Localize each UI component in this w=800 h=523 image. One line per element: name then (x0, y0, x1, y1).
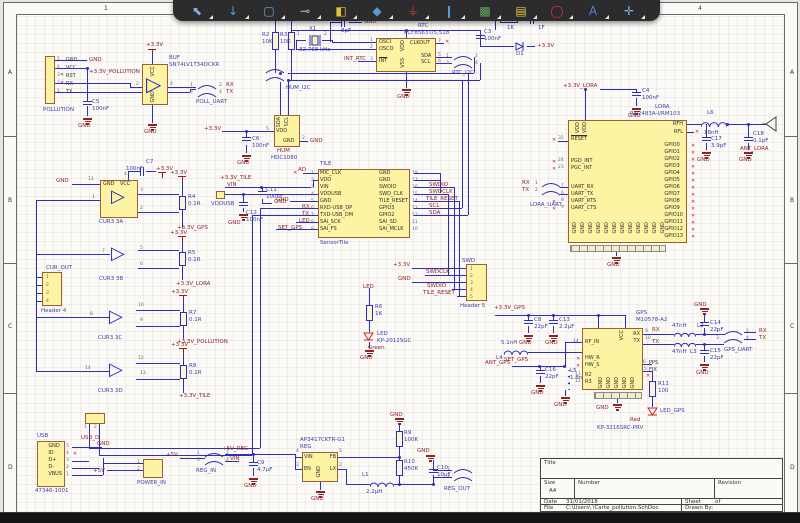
text-label[interactable]: 100nF (484, 36, 501, 42)
inductor[interactable] (674, 330, 696, 339)
opamp-symbol[interactable]: ▷ (111, 245, 125, 263)
text-label[interactable]: C3 (484, 29, 491, 35)
wire[interactable] (585, 89, 586, 120)
wire[interactable] (183, 326, 184, 339)
text-label[interactable]: GND (397, 94, 410, 100)
wire[interactable] (346, 469, 347, 484)
text-label[interactable]: +3.3V (537, 43, 554, 49)
text-label[interactable]: 1 (370, 38, 373, 44)
text-label[interactable]: 1K (507, 25, 514, 31)
wire[interactable] (643, 371, 652, 372)
wire[interactable] (136, 379, 180, 380)
text-label[interactable]: RX (522, 180, 530, 186)
text-label[interactable]: UART_RX (571, 184, 594, 190)
text-label[interactable]: UART_CTS (571, 205, 596, 211)
text-label[interactable]: LED_GPS (660, 408, 685, 414)
gnd-pin-row[interactable]: GNDGNDGNDGNDGNDGNDGNDGNDGNDGNDGNDGND (572, 222, 668, 238)
text-label[interactable]: 12 (575, 379, 581, 385)
text-label[interactable]: GND (696, 370, 709, 376)
wire-tool-icon[interactable]: ⊸ (287, 1, 323, 21)
text-label[interactable]: C8 (534, 317, 541, 323)
wire[interactable] (704, 328, 705, 334)
vertical-label[interactable]: VDD (575, 122, 581, 133)
wire[interactable] (369, 288, 370, 305)
power-symbol[interactable] (178, 236, 186, 242)
text-label[interactable]: GND (360, 355, 373, 361)
wire[interactable] (252, 215, 253, 455)
text-label[interactable]: 32.768 kHz (299, 47, 330, 53)
text-label[interactable]: 22pF (710, 355, 724, 361)
vertical-label[interactable]: VDD (582, 122, 588, 133)
wire[interactable] (560, 194, 568, 195)
wire[interactable] (457, 296, 466, 297)
text-label[interactable]: +3.3V_TILE (220, 175, 251, 181)
wire[interactable] (253, 468, 254, 476)
text-label[interactable]: CUR3 3C (98, 335, 122, 341)
text-label[interactable]: 1F (538, 25, 545, 31)
text-label[interactable]: C13 (559, 317, 570, 323)
text-label[interactable]: SDA (429, 210, 440, 216)
text-label[interactable]: RTC (418, 23, 428, 29)
wire[interactable] (338, 457, 399, 458)
wire[interactable] (414, 180, 440, 181)
wire[interactable] (276, 229, 318, 230)
text-label[interactable]: ANT_GPS (485, 360, 510, 366)
text-label[interactable]: GND (398, 276, 411, 282)
wire[interactable] (128, 176, 129, 180)
text-label[interactable]: 3 (446, 61, 449, 67)
pointer-tool-icon[interactable]: ⬉ (179, 1, 215, 21)
text-label[interactable]: FB (330, 454, 336, 460)
text-label[interactable]: 10K (280, 39, 291, 45)
text-label[interactable]: C5 (92, 99, 99, 105)
text-label[interactable]: 100nF (642, 95, 659, 101)
vertical-label[interactable]: VCC (619, 330, 625, 340)
connector-symbol[interactable] (452, 53, 474, 69)
text-label[interactable]: L1 (362, 472, 369, 478)
text-label[interactable]: 1 (446, 54, 449, 60)
resistor[interactable] (396, 460, 403, 476)
text-label[interactable]: +5V (166, 452, 178, 458)
text-label[interactable]: VIN (304, 454, 313, 460)
capacitor[interactable] (744, 137, 753, 141)
capacitor[interactable] (83, 101, 92, 105)
wire[interactable] (346, 484, 370, 485)
wire[interactable] (295, 457, 302, 458)
text-label[interactable]: CUR3 3B (99, 276, 123, 282)
text-label[interactable]: M10578-A2 (636, 317, 667, 323)
text-label[interactable]: 3.9pF (711, 143, 726, 149)
text-label[interactable]: TX (522, 187, 529, 193)
wire[interactable] (468, 73, 469, 215)
text-label[interactable]: R3 (585, 379, 592, 385)
wire[interactable] (260, 208, 318, 209)
wire[interactable] (303, 173, 318, 174)
text-label[interactable]: +3.3V_LORA (176, 281, 210, 287)
connector-symbol[interactable] (722, 328, 744, 344)
text-label[interactable]: +3.3V_LORA (563, 83, 597, 89)
text-label[interactable]: GND (89, 57, 102, 63)
text-label[interactable]: R9 (404, 430, 411, 436)
text-label[interactable]: HUM (277, 148, 290, 154)
capacitor[interactable] (700, 322, 709, 326)
text-label[interactable]: SN74LV1T34DCKR (169, 62, 219, 68)
text-label[interactable]: 8pF (341, 28, 351, 34)
text-label[interactable]: 47nH (672, 349, 687, 355)
text-label[interactable]: 3 (296, 463, 299, 469)
wire[interactable] (296, 222, 318, 223)
text-label[interactable]: CLKOUT (410, 40, 430, 46)
wire[interactable] (296, 49, 376, 50)
wire[interactable] (313, 180, 314, 187)
text-label[interactable]: R3 (280, 32, 287, 38)
text-label[interactable]: 4 (219, 90, 222, 96)
text-label[interactable]: SET_GPS (278, 225, 302, 231)
text-label[interactable]: LORA (655, 104, 670, 110)
net-label-tool-icon[interactable]: ◆ (359, 1, 395, 21)
text-label[interactable]: RX (652, 327, 660, 333)
wire[interactable] (146, 171, 156, 172)
wire[interactable] (288, 82, 289, 115)
power-symbol[interactable] (179, 295, 187, 301)
text-label[interactable]: D1 (516, 51, 524, 57)
text-label[interactable]: SWDCLK (426, 269, 450, 275)
wire[interactable] (320, 482, 321, 490)
text-label[interactable]: GND (739, 157, 752, 163)
text-label[interactable]: TX (634, 338, 640, 344)
text-label[interactable]: 100 (658, 388, 669, 394)
taskbar[interactable] (0, 512, 800, 523)
wire[interactable] (182, 266, 183, 280)
pin-list[interactable]: GND VCC RST RX TX (66, 56, 77, 96)
text-label[interactable]: LORA_UART (530, 202, 562, 208)
capacitor[interactable] (702, 137, 711, 141)
pin-tool-icon[interactable]: ❙ (431, 1, 467, 21)
text-label[interactable]: C16 (545, 367, 556, 373)
wire[interactable] (103, 458, 104, 475)
text-label[interactable]: RFL (674, 129, 683, 135)
text-label[interactable]: 2 (370, 45, 373, 51)
move-tool-icon[interactable]: ↓ (215, 1, 251, 21)
wire[interactable] (565, 342, 566, 366)
text-label[interactable]: GND (97, 441, 110, 447)
wire[interactable] (358, 61, 376, 62)
text-label[interactable]: KP-3216SRC-PRV (597, 425, 643, 431)
text-label[interactable]: 100K (404, 437, 418, 443)
text-label[interactable]: 1 (84, 425, 87, 431)
wire[interactable] (55, 92, 190, 93)
component-body[interactable] (143, 459, 163, 478)
text-label[interactable]: 0.1R (188, 257, 201, 263)
pin-list[interactable]: GND GND SWDIO SWD_CLK TILE_RESET GPIO3 G… (379, 170, 408, 233)
connector-symbol[interactable] (264, 66, 286, 82)
text-label[interactable]: GND (554, 402, 567, 408)
text-label[interactable]: 4 (124, 172, 127, 178)
wire[interactable] (369, 342, 370, 348)
junction-dot[interactable] (432, 483, 435, 486)
resistor[interactable] (180, 365, 187, 379)
text-label[interactable]: +3.3V_POLLUTION (89, 69, 140, 75)
text-label[interactable]: 1 (137, 460, 140, 466)
text-label[interactable]: 24 (558, 158, 564, 164)
wire[interactable] (394, 484, 433, 485)
text-label[interactable]: GND (519, 340, 532, 346)
no-erc-marker[interactable]: ✕ (552, 138, 556, 143)
text-label[interactable]: RN2483A-I/RM103 (630, 111, 680, 117)
wire[interactable] (560, 187, 568, 188)
text-label[interactable]: RX (302, 204, 310, 210)
no-erc-marker[interactable]: ✕ (60, 73, 64, 78)
text-label[interactable]: 11 (575, 372, 581, 378)
schematic-canvas[interactable]: 5 4 3 2 1GND VCC RST RX TXPOLLUTIONGND+3… (0, 0, 800, 523)
text-label[interactable]: GPS_UART (724, 347, 752, 353)
resistor[interactable] (396, 431, 403, 447)
wire[interactable] (36, 200, 100, 201)
wire[interactable] (36, 254, 110, 255)
resistor[interactable] (649, 381, 656, 397)
wire[interactable] (448, 194, 449, 275)
text-label[interactable]: 100nF (126, 166, 143, 172)
wire[interactable] (87, 68, 88, 101)
wire[interactable] (36, 371, 109, 372)
text-label[interactable]: GND (244, 483, 257, 489)
text-label[interactable]: 47346-1001 (35, 488, 68, 494)
text-label[interactable]: 6 (438, 59, 441, 65)
text-label[interactable]: +3.3V_GPS (494, 305, 525, 311)
text-label[interactable]: R2 (262, 32, 269, 38)
text-label[interactable]: +3.3V (204, 126, 221, 132)
wire[interactable] (528, 326, 529, 333)
text-label[interactable]: LED (377, 331, 388, 337)
text-label[interactable]: 11 (88, 177, 94, 183)
wire[interactable] (406, 30, 480, 31)
connector-symbol[interactable] (203, 450, 225, 466)
text-label[interactable]: GND (237, 160, 250, 166)
no-erc-marker[interactable]: ✕ (445, 40, 449, 45)
text-label[interactable]: VDD (276, 128, 287, 134)
pin-list[interactable]: 5 4 3 2 1 (66, 443, 69, 478)
text-label[interactable]: INT (379, 58, 387, 64)
capacitor[interactable] (239, 202, 248, 206)
text-label[interactable]: GND (311, 496, 324, 502)
wire[interactable] (462, 80, 463, 208)
text-label[interactable]: 3 (447, 474, 450, 480)
pin-list[interactable]: GND ID D+ D- VBUS (48, 443, 62, 478)
text-label[interactable]: SWDIO (429, 182, 448, 188)
wire[interactable] (291, 50, 292, 80)
text-label[interactable]: UART_TX (571, 191, 593, 197)
wire[interactable] (433, 460, 434, 469)
text-label[interactable]: 2.2µH (366, 489, 382, 495)
text-label[interactable]: 10 (138, 303, 144, 309)
text-label[interactable]: HUM_I2C (286, 85, 311, 91)
sheet-symbol-tool-icon[interactable]: ▩ (467, 1, 503, 21)
wire[interactable] (291, 30, 406, 31)
resistor[interactable] (179, 196, 186, 210)
text-label[interactable]: C14 (710, 320, 721, 326)
text-label[interactable]: 450K (404, 466, 418, 472)
text-label[interactable]: 5 (140, 246, 143, 252)
selection-tool-icon[interactable]: ▢ (251, 1, 287, 21)
wire[interactable] (296, 40, 297, 49)
no-erc-marker[interactable]: ✕ (576, 357, 580, 362)
component-body[interactable] (45, 56, 55, 104)
text-label[interactable]: R10 (404, 459, 415, 465)
text-label[interactable]: UART_RTS (571, 198, 596, 204)
junction-dot[interactable] (584, 88, 587, 91)
wire[interactable] (330, 22, 331, 42)
text-label[interactable]: 7 (438, 39, 441, 45)
text-label[interactable]: POLL_UART (196, 99, 227, 105)
text-label[interactable]: Header 5 (460, 303, 485, 309)
no-erc-marker[interactable]: ✕ (552, 167, 556, 172)
wire[interactable] (454, 187, 455, 289)
text-label[interactable]: TX (302, 211, 309, 217)
wire[interactable] (436, 63, 452, 64)
wire[interactable] (527, 46, 535, 47)
wire[interactable] (406, 72, 407, 88)
wire[interactable] (480, 30, 481, 46)
wire[interactable] (275, 21, 276, 32)
text-label[interactable]: GND (228, 220, 241, 226)
inductor[interactable] (674, 340, 696, 349)
text-label[interactable]: R2 (585, 372, 592, 378)
text-label[interactable]: HW_R (585, 355, 600, 361)
text-label[interactable]: GND (78, 123, 91, 129)
text-label[interactable]: 100nF (92, 106, 109, 112)
text-label[interactable]: RF_IN (585, 339, 599, 345)
wire[interactable] (687, 132, 694, 133)
text-label[interactable]: LED (299, 218, 310, 224)
text-label[interactable]: OSCO (379, 46, 394, 52)
text-label[interactable]: 2 (324, 32, 327, 38)
text-label[interactable]: +3.3V_TILE (179, 393, 210, 399)
wire[interactable] (565, 390, 566, 396)
wire[interactable] (495, 315, 625, 316)
text-label[interactable]: 13 (140, 371, 146, 377)
wire[interactable] (474, 57, 475, 73)
text-label[interactable]: C6 (252, 136, 259, 142)
text-label[interactable]: 3 (190, 90, 193, 96)
no-erc-marker[interactable]: ✕ (576, 364, 580, 369)
text-label[interactable]: GND (417, 448, 430, 454)
wire[interactable] (72, 184, 100, 185)
wire[interactable] (295, 469, 302, 470)
text-label[interactable]: GPS (636, 310, 647, 316)
sheet-entry-tool-icon[interactable]: ▤ (503, 1, 539, 21)
power-port-tool-icon[interactable]: ⏚ (395, 1, 431, 21)
power-symbol[interactable] (179, 348, 187, 354)
gnd-pin-row[interactable]: GNDGNDGNDGNDGND (598, 377, 638, 393)
text-label[interactable]: RX (226, 82, 234, 88)
wire[interactable] (480, 63, 481, 80)
text-label[interactable]: X1 (309, 26, 316, 32)
text-label[interactable]: 47nH (672, 323, 687, 329)
wire[interactable] (36, 317, 109, 318)
resistor[interactable] (179, 252, 186, 266)
junction-dot[interactable] (726, 123, 729, 126)
wire[interactable] (36, 277, 42, 278)
text-label[interactable]: EN (304, 466, 311, 472)
no-erc-tool-icon[interactable]: ◯ (539, 1, 575, 21)
text-label[interactable]: 1 (447, 467, 450, 473)
text-label[interactable]: 2 (219, 83, 222, 89)
text-label[interactable]: GND (276, 197, 289, 203)
junction-dot[interactable] (747, 123, 750, 126)
text-label[interactable]: SCL (421, 59, 430, 65)
wire[interactable] (436, 57, 452, 58)
text-label[interactable]: REG_IN (196, 468, 216, 474)
text-label[interactable]: 3 (370, 57, 373, 63)
wire[interactable] (138, 250, 179, 251)
text-label[interactable]: 1 (190, 83, 193, 89)
wire[interactable] (138, 212, 179, 213)
text-label[interactable]: OSCI (379, 39, 391, 45)
wire[interactable] (652, 397, 653, 407)
capacitor[interactable] (700, 350, 709, 354)
wire[interactable] (625, 315, 626, 328)
capacitor[interactable] (536, 370, 545, 374)
wire[interactable] (225, 461, 239, 462)
text-label[interactable]: 5 (266, 127, 269, 133)
wire[interactable] (540, 376, 541, 383)
text-label[interactable]: C17 (711, 136, 722, 142)
wire[interactable] (136, 310, 180, 311)
wire[interactable] (253, 454, 254, 462)
text-label[interactable]: +3.3V (393, 262, 410, 268)
antenna-symbol[interactable] (762, 115, 780, 133)
text-label[interactable]: HW_S (585, 362, 599, 368)
text-label[interactable]: PGD_INT (571, 158, 593, 164)
text-label[interactable]: 0.1R (189, 370, 202, 376)
connector-symbol[interactable] (452, 466, 474, 482)
inductor[interactable] (701, 120, 727, 129)
text-label[interactable]: 9 (140, 318, 143, 324)
text-label[interactable]: 22pF (534, 324, 548, 330)
wire[interactable] (704, 313, 705, 322)
text-label[interactable]: 22pF (545, 374, 559, 380)
connector-symbol[interactable] (540, 180, 562, 196)
connector-symbol[interactable] (196, 82, 218, 98)
pin-list[interactable]: 1 2 3 4 5 (470, 266, 473, 301)
wire[interactable] (243, 194, 244, 202)
text-label[interactable]: 14 (573, 339, 579, 345)
wire[interactable] (36, 285, 42, 286)
opamp-symbol[interactable]: ▷ (109, 308, 123, 326)
text-label[interactable]: TX (652, 339, 659, 345)
capacitor[interactable] (242, 137, 251, 141)
wire[interactable] (436, 43, 444, 44)
inductor[interactable] (561, 370, 570, 390)
text-label[interactable]: 1 (197, 451, 200, 457)
text-label[interactable]: GND (531, 390, 544, 396)
wire[interactable] (600, 89, 636, 90)
text-tool-icon[interactable]: A (575, 1, 611, 21)
text-label[interactable]: 2 (475, 54, 478, 60)
wire[interactable] (330, 22, 341, 23)
wire[interactable] (288, 73, 474, 74)
opamp-symbol[interactable]: ▷ (111, 188, 125, 206)
wire[interactable] (300, 141, 308, 142)
text-label[interactable]: RESET (571, 136, 587, 142)
pin-list[interactable]: 1 2 3 4 (46, 274, 49, 306)
text-label[interactable]: 0.1R (189, 317, 202, 323)
text-label[interactable]: GND (596, 405, 609, 411)
text-label[interactable]: 10 (645, 336, 651, 342)
text-label[interactable]: 4.7µF (257, 467, 272, 473)
wire[interactable] (399, 423, 400, 431)
text-label[interactable]: 12 (138, 356, 144, 362)
